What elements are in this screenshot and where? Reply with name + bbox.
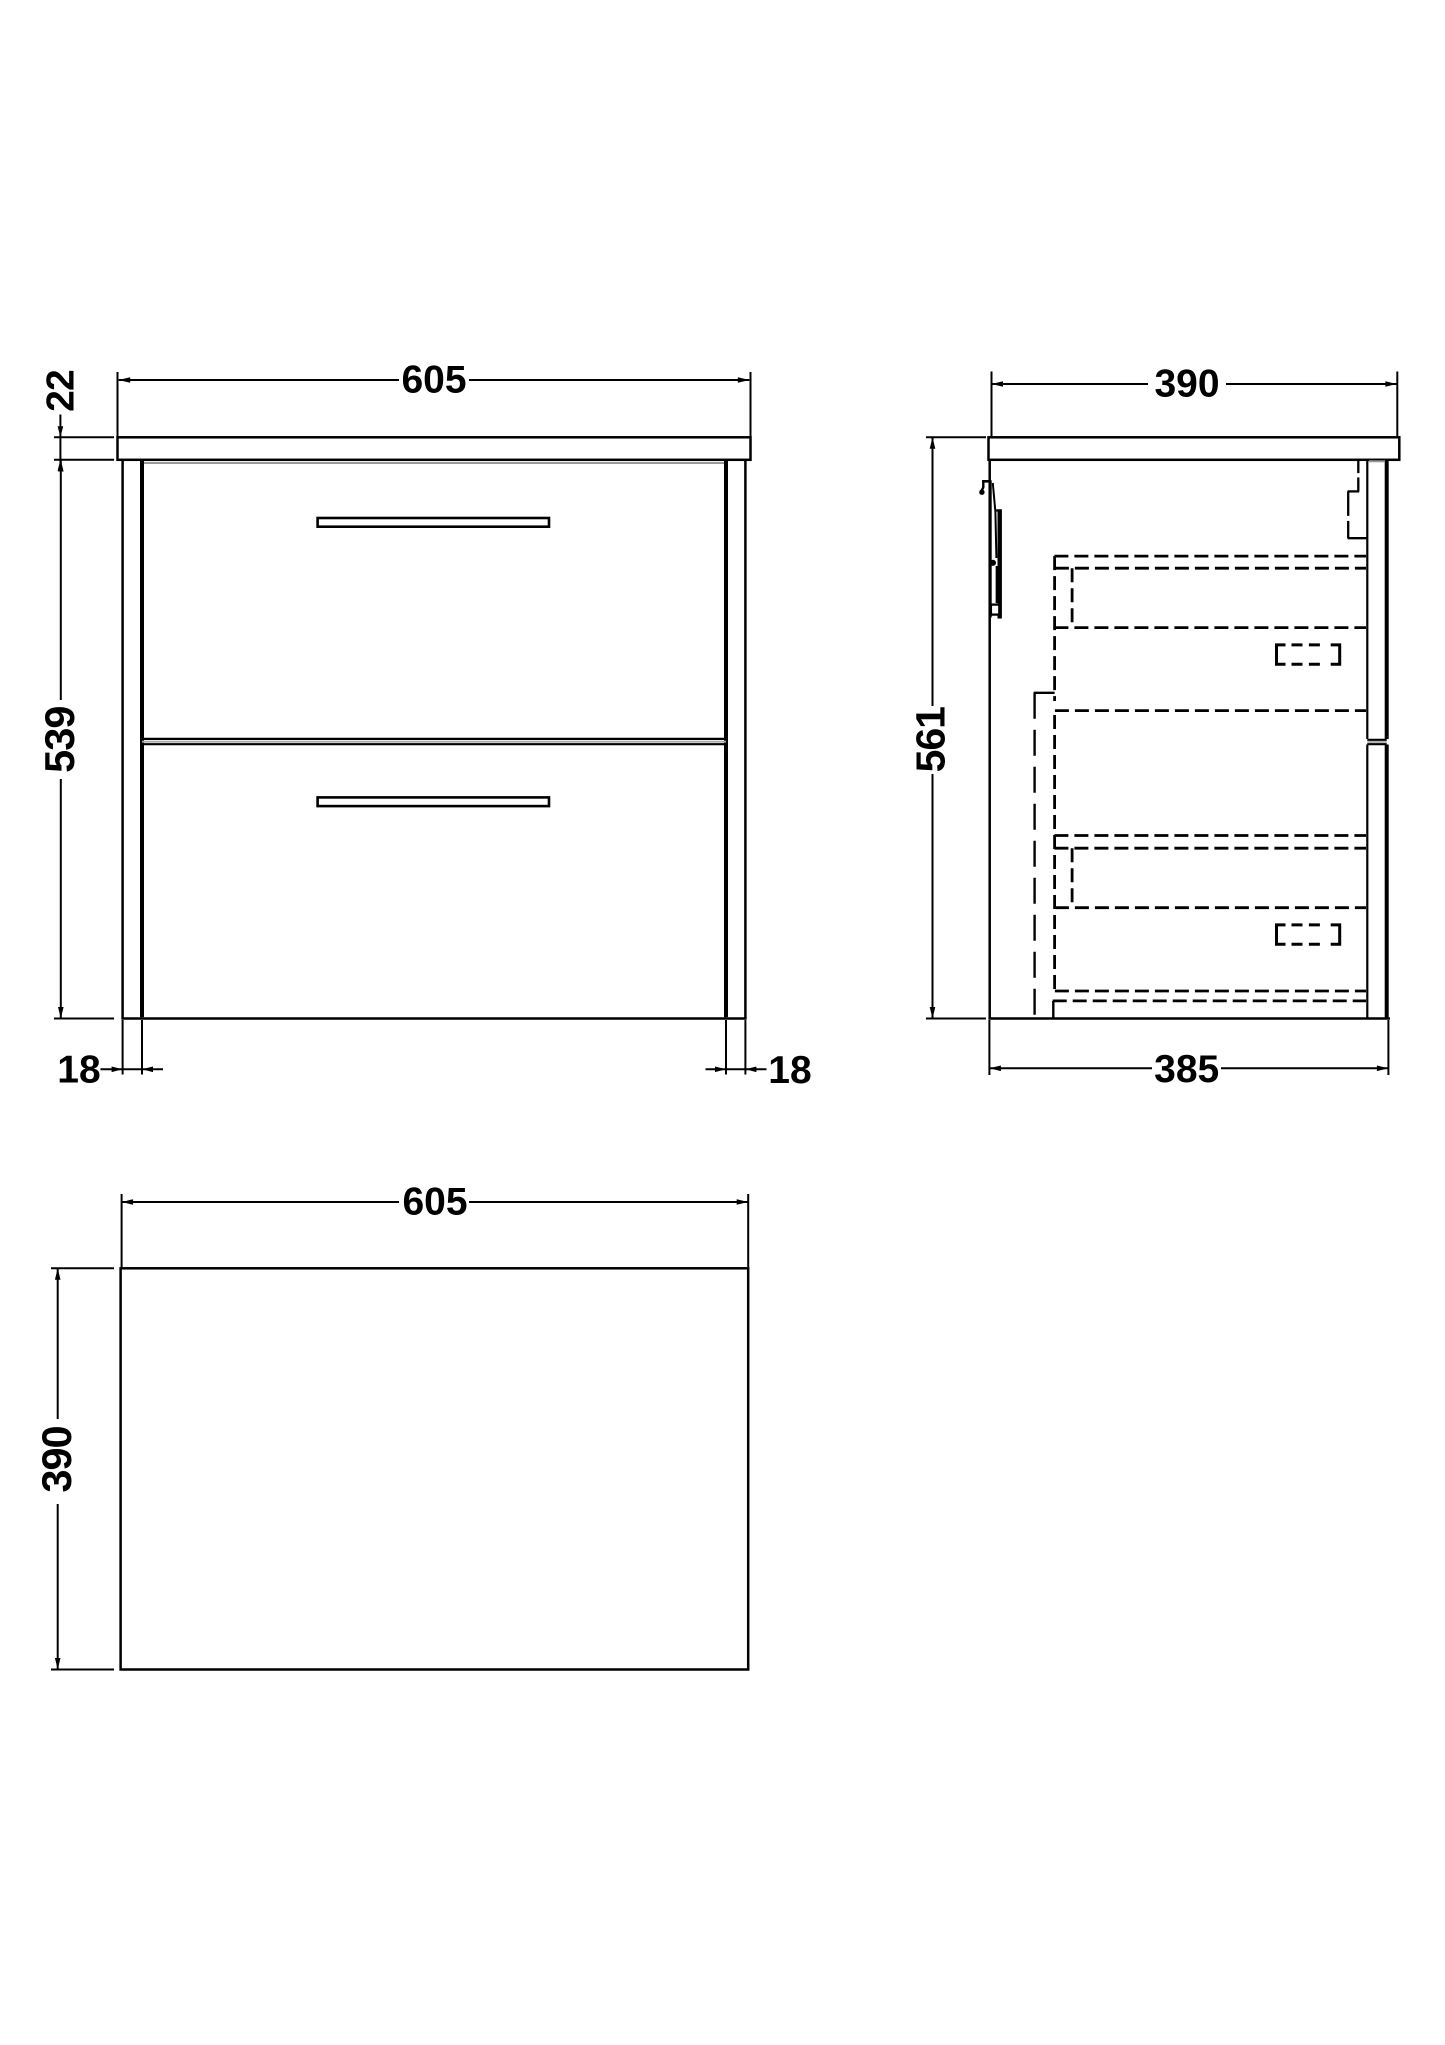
svg-text:605: 605 [402,1181,467,1224]
svg-text:385: 385 [1154,1048,1219,1091]
svg-text:390: 390 [1154,363,1219,406]
svg-text:18: 18 [57,1048,100,1091]
svg-text:22: 22 [40,370,83,412]
svg-text:539: 539 [36,707,83,773]
svg-text:605: 605 [401,359,466,402]
svg-text:18: 18 [768,1049,811,1092]
svg-text:561: 561 [908,707,954,773]
svg-text:390: 390 [33,1426,80,1492]
